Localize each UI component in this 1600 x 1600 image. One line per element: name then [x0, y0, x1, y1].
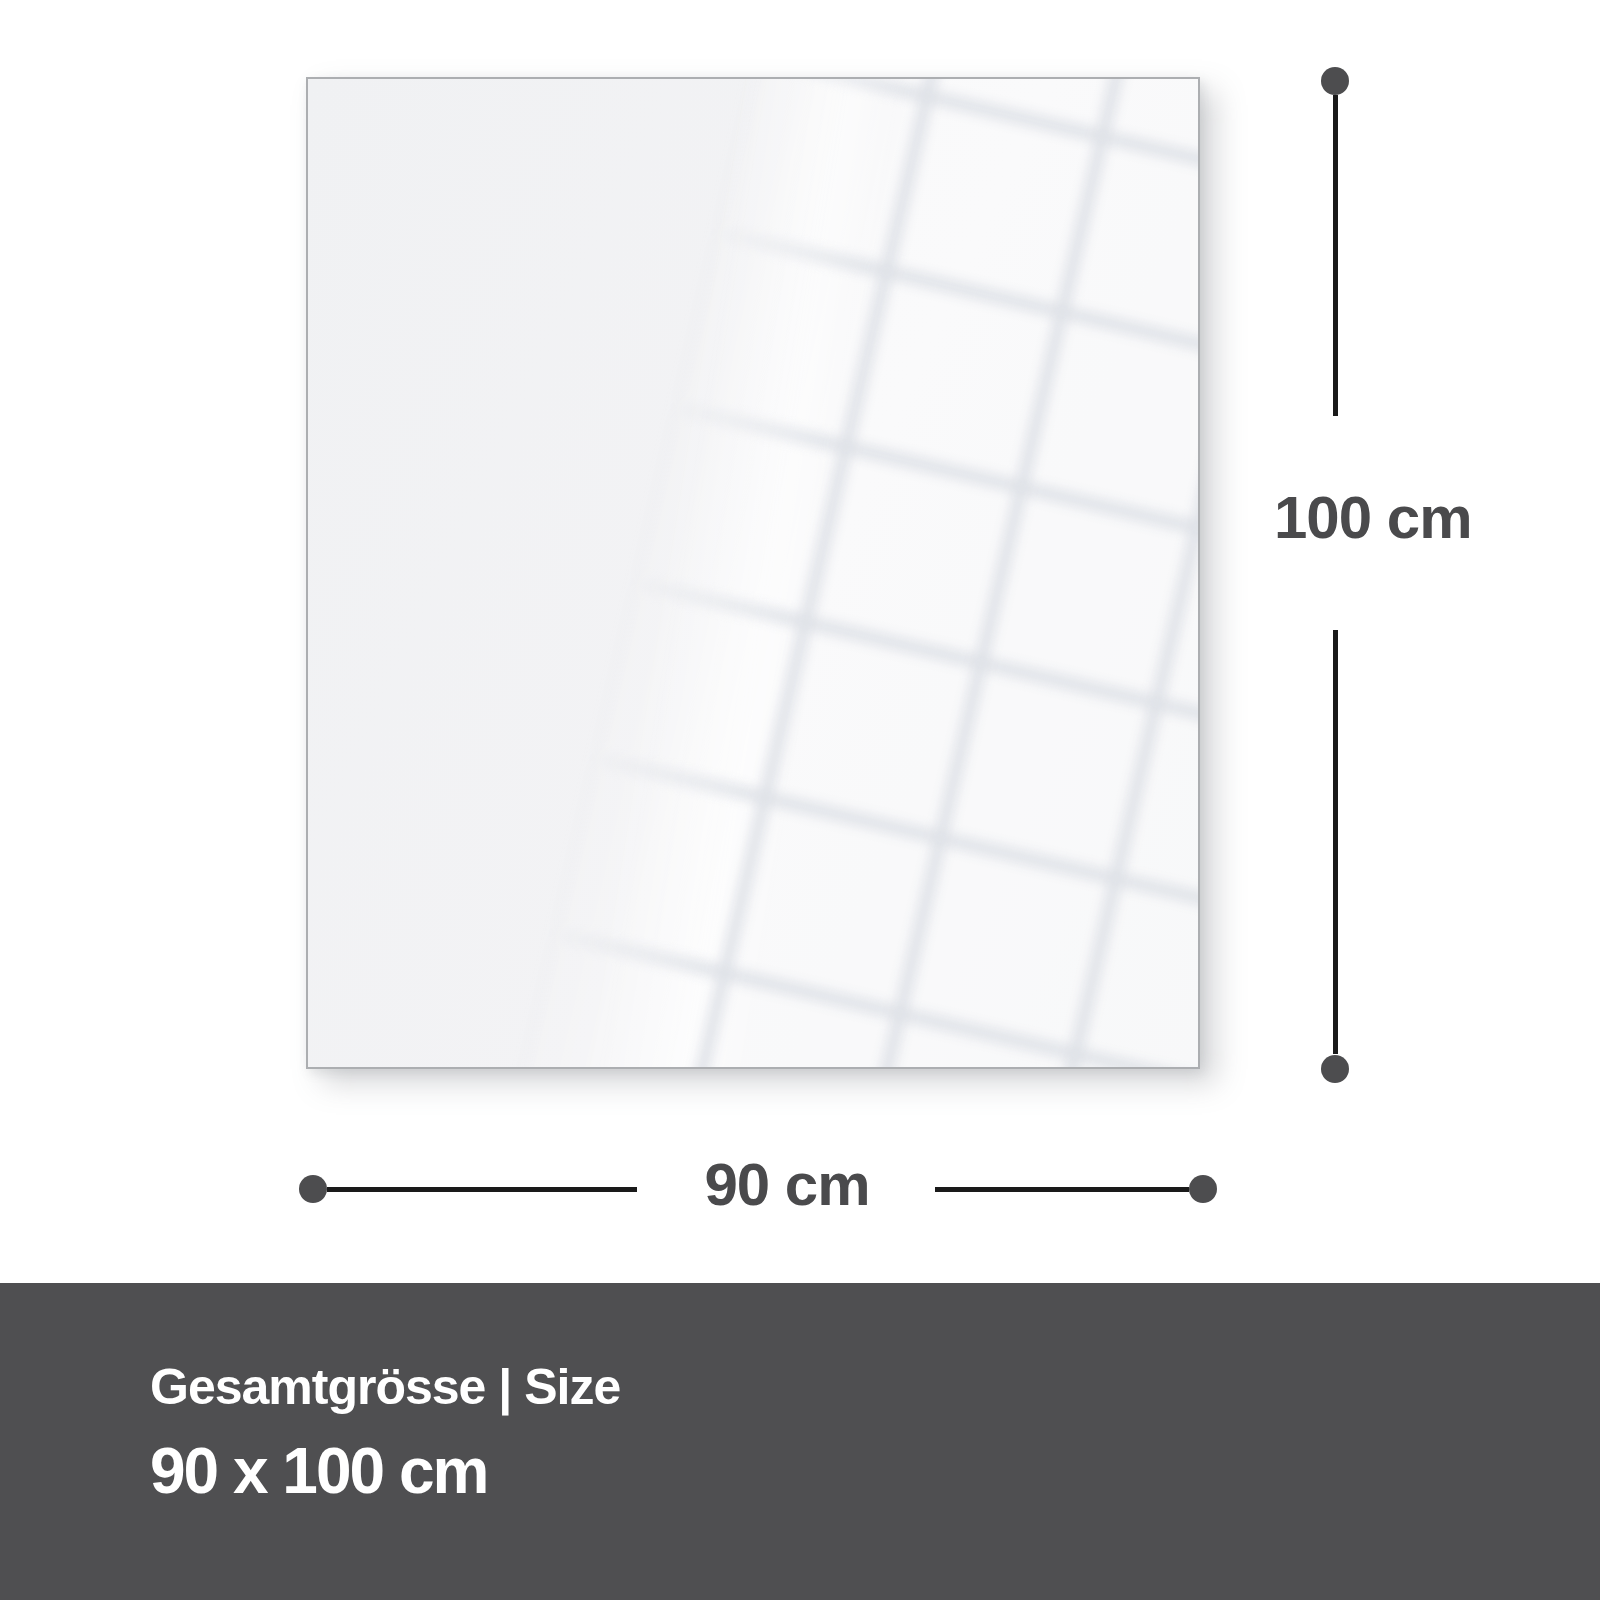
dimension-line-left-segment	[327, 1187, 637, 1192]
dimension-line-right-segment	[935, 1187, 1189, 1192]
height-dimension-label: 100 cm	[1274, 486, 1472, 550]
dimension-endpoint-dot-left	[299, 1175, 327, 1203]
footer-heading: Gesamtgrösse | Size	[150, 1358, 1600, 1416]
dimension-endpoint-dot-top	[1321, 67, 1349, 95]
size-footer: Gesamtgrösse | Size 90 x 100 cm	[0, 1283, 1600, 1600]
dimension-endpoint-dot-bottom	[1321, 1055, 1349, 1083]
panel-reflection-layer	[308, 79, 1198, 1067]
window-grid-reflection	[460, 79, 1198, 1067]
dimension-line-lower-segment	[1333, 630, 1338, 1054]
footer-size-value: 90 x 100 cm	[150, 1436, 1600, 1506]
dimension-line-upper-segment	[1333, 95, 1338, 416]
width-dimension-label: 90 cm	[697, 1153, 877, 1217]
dimension-endpoint-dot-right	[1189, 1175, 1217, 1203]
product-panel	[306, 77, 1200, 1069]
product-size-diagram: 100 cm 90 cm Gesamtgrösse | Size 90 x 10…	[0, 0, 1600, 1600]
